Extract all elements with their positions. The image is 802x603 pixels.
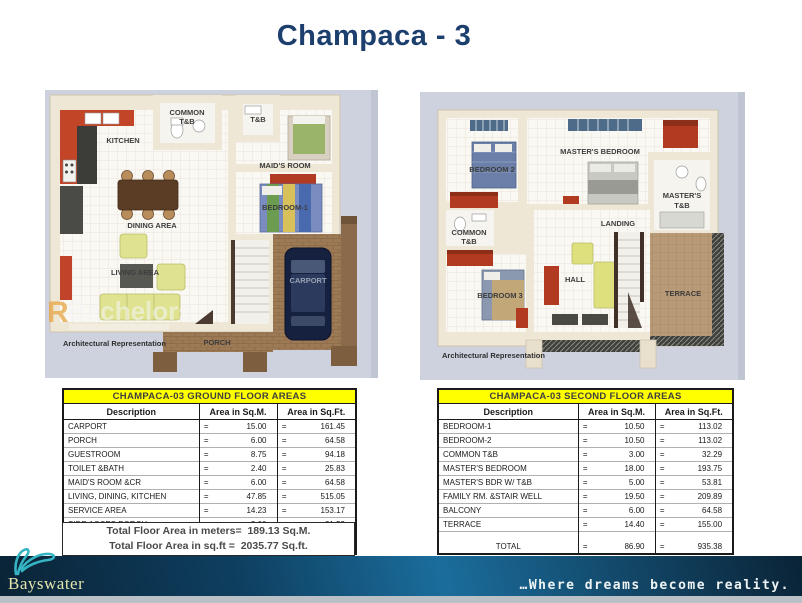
table-cell: TOILET &BATH [63,462,199,476]
spacer-row [438,532,733,540]
table-cell: 8.75 [213,448,277,462]
brand-name: Bayswater [8,574,84,594]
table-cell: = [655,476,669,490]
table-cell: 5.00 [592,476,655,490]
col-sqm: Area in Sq.M. [199,404,277,420]
table-row: BEDROOM-2=10.50=113.02 [438,434,733,448]
landing-label: LANDING [601,219,635,228]
table-cell: BEDROOM-1 [438,420,578,434]
masters-bedroom-label: MASTER'S BEDROOM [560,147,640,156]
table-cell: = [578,490,592,504]
table-cell: 6.00 [213,434,277,448]
table-cell: = [578,476,592,490]
table-cell: = [199,462,213,476]
svg-text:R: R [47,296,69,329]
car [285,248,331,340]
table-cell: 153.17 [291,504,356,518]
table-cell: = [277,462,291,476]
table-row: PORCH=6.00=64.58 [63,434,356,448]
table-cell: FAMILY RM. &STAIR WELL [438,490,578,504]
total-row: TOTAL = 86.90 = 935.38 [438,539,733,554]
maids-room-label: MAID'S ROOM [259,161,310,170]
second-floor-plan-image: BEDROOM 2 MASTER'S BEDROOM MASTER'S T&B … [420,92,745,385]
table-body: CARPORT=15.00=161.45PORCH=6.00=64.58GUES… [63,420,356,532]
table-cell: 15.00 [213,420,277,434]
page-title: Champaca - 3 [0,20,748,53]
ground-carport [273,216,357,366]
table-cell: TERRACE [438,518,578,532]
col-description: Description [438,404,578,420]
equals-sign: = [578,539,592,554]
table-cell: = [578,518,592,532]
table-cell: SERVICE AREA [63,504,199,518]
total-sqft: 935.38 [669,539,733,554]
table-cell: PORCH [63,434,199,448]
col-sqm: Area in Sq.M. [578,404,655,420]
table-title: CHAMPACA-03 SECOND FLOOR AREAS [438,389,733,404]
bedroom3-label: BEDROOM 3 [477,291,522,300]
bachelors-watermark: R Bachelors [47,296,193,330]
table-cell: = [578,462,592,476]
table-cell: = [199,476,213,490]
table-cell: 32.29 [669,448,733,462]
dining-set [118,171,178,220]
table-row: SERVICE AREA=14.23=153.17 [63,504,356,518]
table-cell: 14.40 [592,518,655,532]
table-cell: MASTER'S BDR W/ T&B [438,476,578,490]
table-title-row: CHAMPACA-03 SECOND FLOOR AREAS [438,389,733,404]
table-cell: = [199,448,213,462]
second-floor-areas-table: CHAMPACA-03 SECOND FLOOR AREAS Descripti… [437,388,734,555]
terrace-label: TERRACE [665,289,701,298]
table-row: MASTER'S BEDROOM=18.00=193.75 [438,462,733,476]
footer-bottom-strip [0,596,802,603]
table-cell: LIVING, DINING, KITCHEN [63,490,199,504]
table-row: MASTER'S BDR W/ T&B=5.00=53.81 [438,476,733,490]
table-cell: 113.02 [669,420,733,434]
table-cell: = [655,434,669,448]
col-sqft: Area in Sq.Ft. [655,404,733,420]
footer-tagline: …Where dreams become reality. [520,578,790,593]
common-tb-label-2: T&B [179,117,195,126]
arch-note-ground: Architectural Representation [63,339,166,348]
table-row: MAID'S ROOM &CR=6.00=64.58 [63,476,356,490]
table-cell: MASTER'S BEDROOM [438,462,578,476]
table-cell: CARPORT [63,420,199,434]
table-cell: 19.50 [592,490,655,504]
table-cell: = [277,476,291,490]
table-cell: = [655,448,669,462]
table-cell: 64.58 [291,476,356,490]
kitchen-label: KITCHEN [106,136,139,145]
table-cell: 25.83 [291,462,356,476]
table-title-row: CHAMPACA-03 GROUND FLOOR AREAS [63,389,356,404]
ground-floor-plan-svg: R Bachelors KITCHEN COMMON T&B T&B MAID'… [45,88,378,380]
table-cell: = [578,504,592,518]
table-row: LIVING, DINING, KITCHEN=47.85=515.05 [63,490,356,504]
bedroom1-label: BEDROOM-1 [262,203,308,212]
ground-floor-plan-image: R Bachelors KITCHEN COMMON T&B T&B MAID'… [45,88,378,385]
total-floor-area-box: Total Floor Area in meters= 189.13 Sq.M.… [62,522,355,556]
table-cell: 10.50 [592,420,655,434]
col-sqft: Area in Sq.Ft. [277,404,356,420]
table-cell: GUESTROOM [63,448,199,462]
hall-label: HALL [565,275,585,284]
table-row: BALCONY=6.00=64.58 [438,504,733,518]
table-cell: 193.75 [669,462,733,476]
table-cell: = [655,462,669,476]
total-sqm: 86.90 [592,539,655,554]
carport-label: CARPORT [289,276,327,285]
table-cell: = [277,434,291,448]
table-cell: = [277,504,291,518]
table-cell: = [655,490,669,504]
stairs-second [614,232,644,328]
total-label: TOTAL [438,539,578,554]
svg-text:Bachelors: Bachelors [67,296,193,326]
masters-tb-label-1: MASTER'S [663,191,701,200]
table-cell: 94.18 [291,448,356,462]
table-cell: = [199,490,213,504]
table-body: BEDROOM-1=10.50=113.02BEDROOM-2=10.50=11… [438,420,733,532]
table-cell: 3.00 [592,448,655,462]
table-cell: = [277,448,291,462]
table-row: TOILET &BATH=2.40=25.83 [63,462,356,476]
table-cell: COMMON T&B [438,448,578,462]
table-row: TERRACE=14.40=155.00 [438,518,733,532]
total-area-sqft: Total Floor Area in sq.ft = 2035.77 Sq.f… [63,539,354,554]
table-cell: 47.85 [213,490,277,504]
table-cell: 209.89 [669,490,733,504]
bayswater-logo-icon [8,547,66,577]
table-cell: BALCONY [438,504,578,518]
col-description: Description [63,404,199,420]
table-header-row: Description Area in Sq.M. Area in Sq.Ft. [63,404,356,420]
table-cell: MAID'S ROOM &CR [63,476,199,490]
table-row: BEDROOM-1=10.50=113.02 [438,420,733,434]
table-cell: 53.81 [669,476,733,490]
masters-tb-label-2: T&B [674,201,690,210]
table-row: FAMILY RM. &STAIR WELL=19.50=209.89 [438,490,733,504]
table-cell: 10.50 [592,434,655,448]
table-cell: = [578,434,592,448]
arch-note-second: Architectural Representation [442,351,545,360]
table-cell: = [578,420,592,434]
table-cell: = [199,420,213,434]
table-cell: 161.45 [291,420,356,434]
common-tb-label-1: COMMON [170,108,205,117]
table-cell: 2.40 [213,462,277,476]
table-cell: 64.58 [291,434,356,448]
table-cell: 515.05 [291,490,356,504]
table-cell: 14.23 [213,504,277,518]
table-cell: 6.00 [592,504,655,518]
living-label: LIVING AREA [111,268,160,277]
table-cell: = [655,518,669,532]
table-cell: = [655,504,669,518]
table-header-row: Description Area in Sq.M. Area in Sq.Ft. [438,404,733,420]
second-floor-plan-svg: BEDROOM 2 MASTER'S BEDROOM MASTER'S T&B … [420,92,745,380]
table-row: COMMON T&B=3.00=32.29 [438,448,733,462]
table-title: CHAMPACA-03 GROUND FLOOR AREAS [63,389,356,404]
room-maids [288,116,330,160]
table-cell: 155.00 [669,518,733,532]
common-tb2-label-2: T&B [461,237,477,246]
tb-label: T&B [250,115,266,124]
room-tb [245,106,261,114]
table-cell: 6.00 [213,476,277,490]
table-cell: = [199,434,213,448]
table-cell: BEDROOM-2 [438,434,578,448]
total-area-meters: Total Floor Area in meters= 189.13 Sq.M. [63,524,354,539]
equals-sign: = [655,539,669,554]
porch-label: PORCH [203,338,230,347]
common-tb2-label-1: COMMON [452,228,487,237]
table-cell: = [277,420,291,434]
bedroom2-label: BEDROOM 2 [469,165,514,174]
table-cell: = [578,448,592,462]
table-cell: 64.58 [669,504,733,518]
table-cell: = [277,490,291,504]
dining-label: DINING AREA [127,221,177,230]
table-cell: 18.00 [592,462,655,476]
table-cell: = [199,504,213,518]
table-cell: 113.02 [669,434,733,448]
table-row: GUESTROOM=8.75=94.18 [63,448,356,462]
table-row: CARPORT=15.00=161.45 [63,420,356,434]
slide: Champaca - 3 [0,0,802,603]
table-cell: = [655,420,669,434]
